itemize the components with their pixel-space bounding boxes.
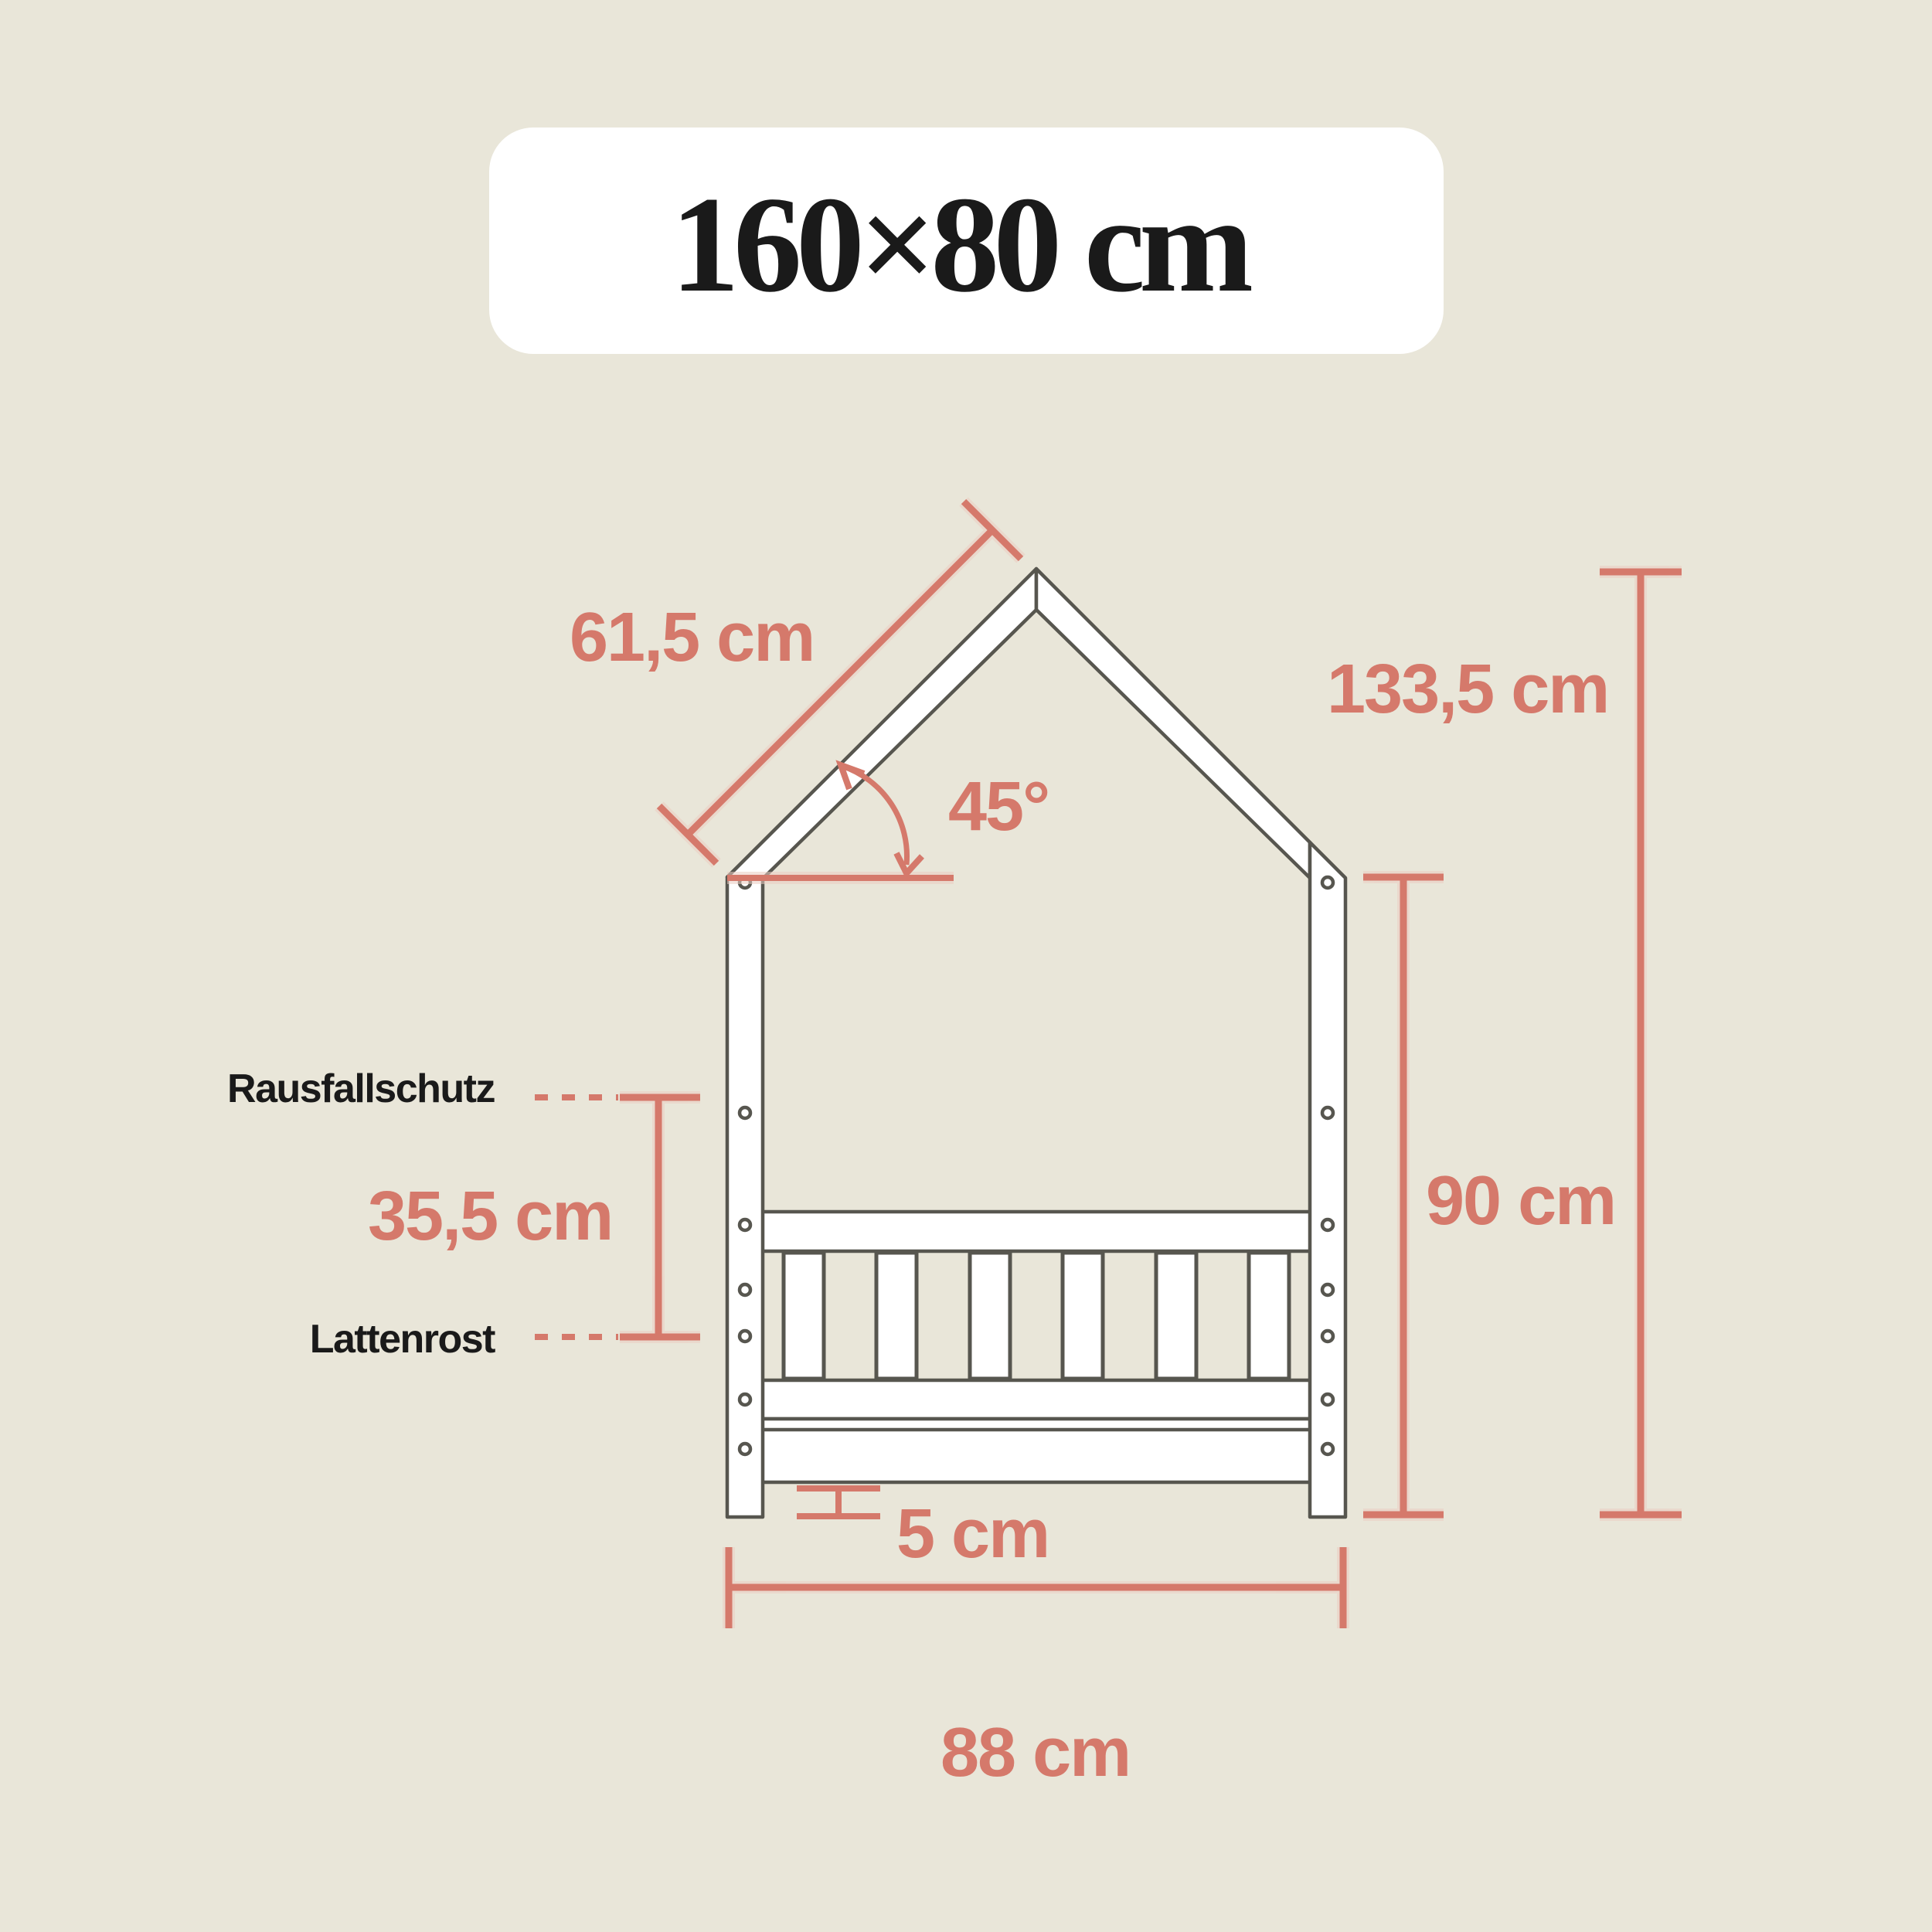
- svg-text:5 cm: 5 cm: [896, 1495, 1049, 1573]
- svg-text:Lattenrost: Lattenrost: [310, 1317, 495, 1362]
- svg-text:133,5 cm: 133,5 cm: [1327, 651, 1608, 728]
- svg-text:Rausfallschutz: Rausfallschutz: [227, 1066, 495, 1111]
- svg-text:45°: 45°: [948, 768, 1049, 845]
- svg-text:61,5 cm: 61,5 cm: [570, 599, 814, 676]
- svg-text:90 cm: 90 cm: [1426, 1162, 1615, 1240]
- svg-text:35,5 cm: 35,5 cm: [368, 1178, 612, 1255]
- svg-text:88 cm: 88 cm: [940, 1714, 1130, 1791]
- svg-text:160×80 cm: 160×80 cm: [671, 168, 1252, 321]
